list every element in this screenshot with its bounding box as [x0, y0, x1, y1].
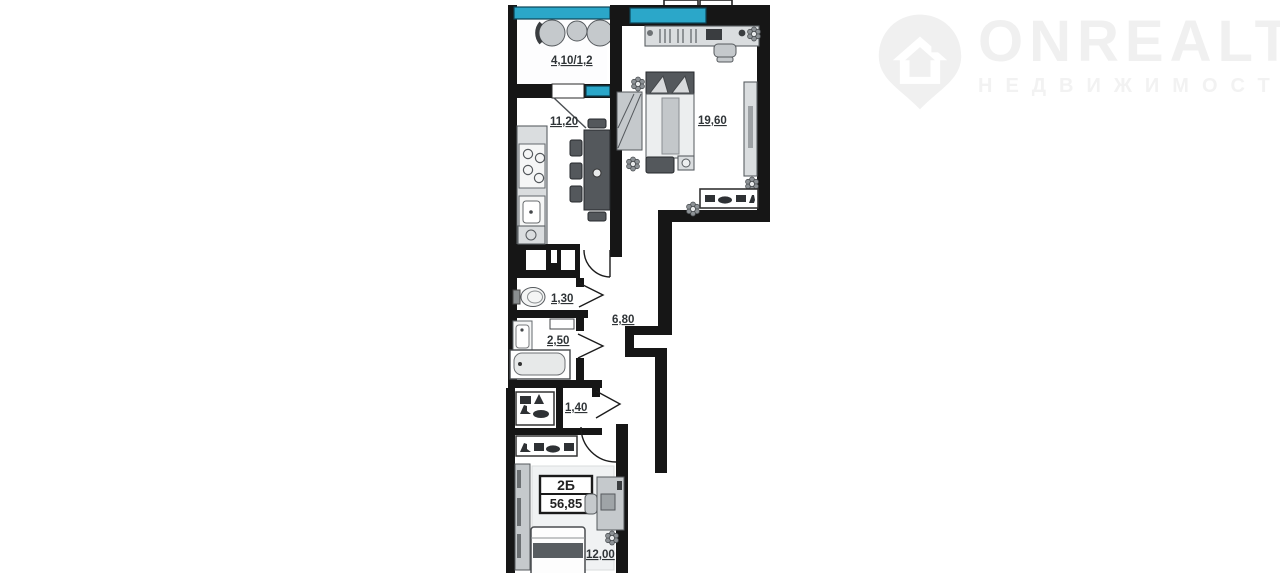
balcony-chair-icon [539, 20, 565, 46]
toilet-tank [513, 290, 520, 304]
chair-icon [570, 140, 582, 156]
washer-icon [518, 226, 545, 244]
balcony: 4,10/1,2 [508, 5, 615, 128]
chair-icon [570, 163, 582, 179]
plant-icon [627, 157, 640, 171]
stove-icon [519, 144, 545, 188]
plant-icon [748, 27, 761, 41]
closet-area-label: 1,40 [565, 402, 587, 414]
chair-icon [588, 212, 606, 221]
toilet-icon [521, 288, 545, 307]
unit-total-area: 56,85 [550, 496, 583, 511]
plant-icon [606, 531, 619, 545]
bedroom-area-label: 12,00 [586, 549, 615, 561]
box-icon [705, 195, 715, 202]
chair-icon [588, 119, 606, 128]
living-room: 19,60 [612, 0, 770, 335]
balcony-chair-icon [587, 20, 613, 46]
bed-blanket [533, 543, 583, 558]
plant-icon [632, 77, 645, 91]
printer-icon [706, 29, 722, 40]
unit-label-box: 2Б 56,85 [540, 476, 592, 513]
box-icon [534, 443, 544, 451]
monitor-icon [601, 494, 615, 510]
unit-type-label: 2Б [557, 477, 575, 493]
kitchen-door-arc [584, 250, 610, 277]
balcony-table-icon [567, 21, 587, 41]
shoe-icon [533, 410, 549, 418]
bath-door [578, 334, 603, 358]
kitchen-window [586, 86, 610, 96]
box-icon [564, 443, 574, 451]
hall-area-label: 6,80 [612, 314, 634, 326]
bath-area-label: 2,50 [547, 335, 569, 347]
wc-area-label: 1,30 [551, 293, 573, 305]
box-icon [736, 195, 746, 202]
bathroom: 2,50 [508, 315, 603, 388]
balcony-window [514, 7, 610, 19]
plant-icon [687, 202, 700, 216]
floor-plan-page: ONREALT НЕДВИЖИМОСТЬ [0, 0, 1280, 573]
balcony-door-gap [552, 84, 584, 98]
shelf-icon [550, 319, 574, 329]
living-area-label: 19,60 [698, 115, 727, 127]
shelf-books-icon [660, 29, 696, 43]
chair-icon [585, 494, 597, 514]
chair-icon [570, 186, 582, 202]
bed-bench-icon [646, 157, 674, 173]
balcony-area-label: 4,10/1,2 [551, 55, 593, 67]
closet: 1,40 [508, 388, 620, 435]
office-chair-icon [714, 44, 736, 57]
box-icon [520, 396, 531, 404]
shoe-icon [546, 445, 560, 452]
floor-plan-drawing: 4,10/1,2 11,20 [0, 0, 1280, 573]
living-window [630, 8, 706, 23]
vent-shaft [508, 226, 580, 278]
kitchen-area-label: 11,20 [550, 116, 578, 128]
shoe-icon [718, 196, 732, 203]
